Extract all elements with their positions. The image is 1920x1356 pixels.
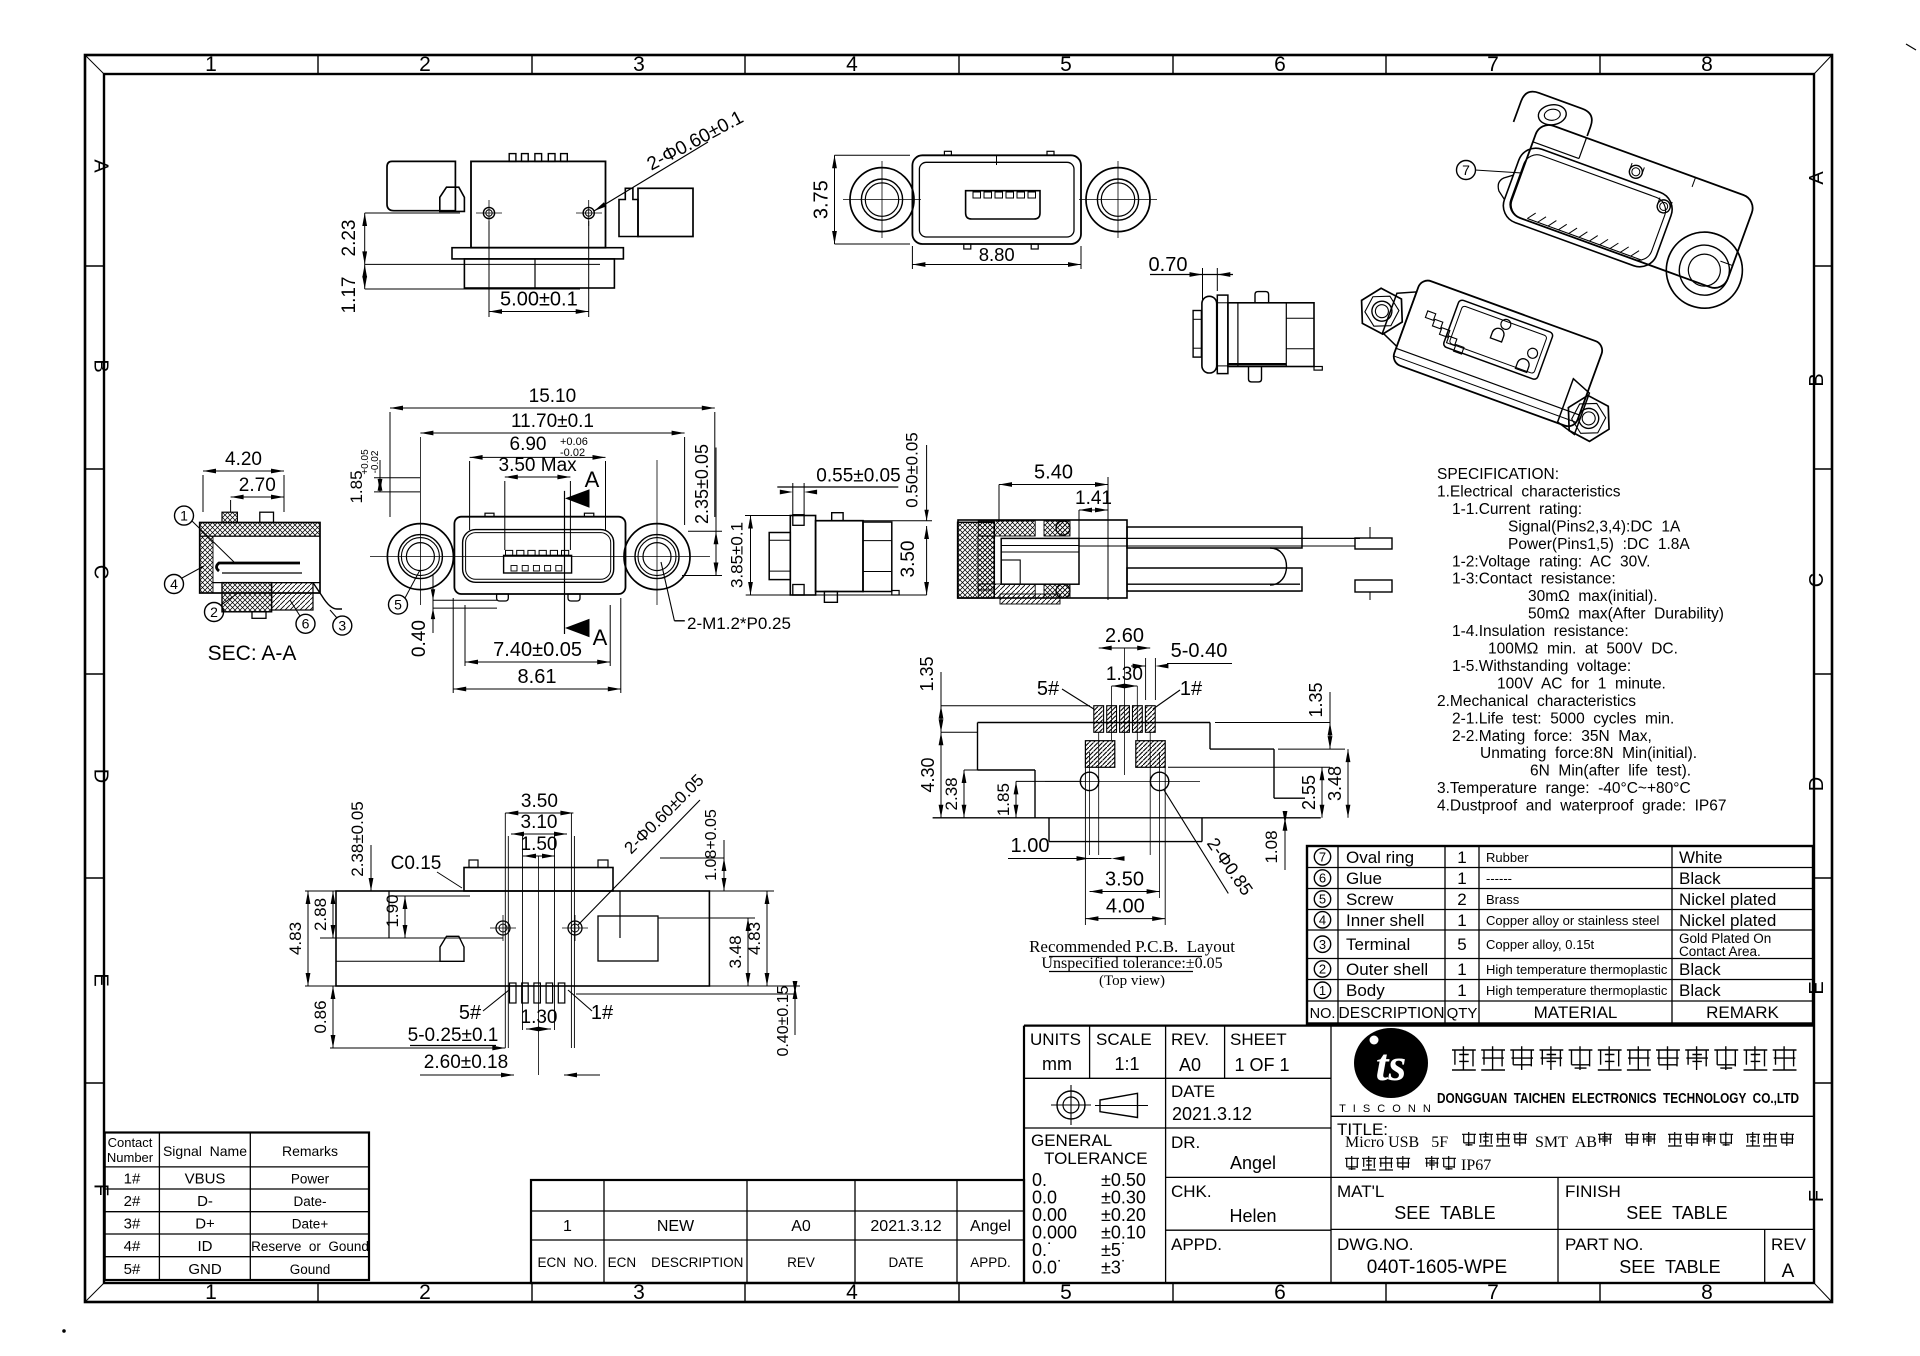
svg-text:ID: ID: [198, 1238, 213, 1255]
svg-text:±3˙: ±3˙: [1101, 1258, 1127, 1278]
svg-text:Oval ring: Oval ring: [1346, 848, 1414, 867]
svg-text:Signal(Pins2,3,4):DC 1A: Signal(Pins2,3,4):DC 1A: [1508, 518, 1681, 535]
svg-text:0.40±0.15: 0.40±0.15: [775, 985, 792, 1056]
svg-text:Angel: Angel: [1230, 1153, 1276, 1173]
svg-text:5#: 5#: [459, 1002, 482, 1024]
svg-text:Date-: Date-: [293, 1194, 326, 1209]
svg-text:Copper alloy or stainless stee: Copper alloy or stainless steel: [1486, 913, 1660, 928]
svg-text:2.70: 2.70: [239, 475, 276, 496]
svg-text:1.08+0.05: 1.08+0.05: [703, 809, 720, 881]
svg-text:1.30: 1.30: [521, 1007, 558, 1028]
svg-text:Unspecified tolerance:±0.05: Unspecified tolerance:±0.05: [1041, 955, 1222, 972]
svg-text:4.30: 4.30: [918, 757, 938, 792]
svg-text:2.Mechanical characteristics: 2.Mechanical characteristics: [1437, 693, 1636, 710]
svg-text:Date+: Date+: [292, 1216, 329, 1231]
svg-text:Helen: Helen: [1229, 1206, 1276, 1226]
svg-text:SEC: A-A: SEC: A-A: [208, 642, 297, 665]
svg-text:040T-1605-WPE: 040T-1605-WPE: [1367, 1257, 1507, 1278]
svg-text:F: F: [90, 1184, 112, 1196]
svg-text:SEE TABLE: SEE TABLE: [1626, 1203, 1727, 1223]
svg-text:A0: A0: [1179, 1055, 1201, 1075]
svg-text:DATE: DATE: [1171, 1082, 1215, 1101]
svg-text:1-5.Withstanding voltage:: 1-5.Withstanding voltage:: [1452, 658, 1631, 675]
svg-text:(Top view): (Top view): [1099, 973, 1165, 989]
svg-text:TOLERANCE: TOLERANCE: [1044, 1149, 1148, 1168]
svg-text:6: 6: [302, 616, 310, 632]
svg-text:5#: 5#: [1037, 678, 1060, 700]
svg-text:3.Temperature range: -40°C~+: 3.Temperature range: -40°C~+80°C: [1437, 780, 1691, 797]
svg-text:------: ------: [1486, 871, 1512, 886]
svg-text:6: 6: [1274, 1281, 1286, 1304]
svg-text:Glue: Glue: [1346, 869, 1382, 888]
svg-text:1:1: 1:1: [1114, 1054, 1139, 1074]
svg-text:Recommended P.C.B. Layout: Recommended P.C.B. Layout: [1029, 937, 1235, 956]
svg-text:0.86: 0.86: [311, 1000, 330, 1033]
svg-text:100V AC for 1 minute.: 100V AC for 1 minute.: [1497, 675, 1666, 692]
svg-text:30mΩ max(initial).: 30mΩ max(initial).: [1528, 588, 1658, 605]
svg-text:1-2:Voltage rating: AC 30V.: 1-2:Voltage rating: AC 30V.: [1452, 553, 1650, 570]
svg-text:1: 1: [1457, 848, 1466, 867]
svg-text:0.55±0.05: 0.55±0.05: [816, 465, 900, 486]
svg-text:1-4.Insulation resistance:: 1-4.Insulation resistance:: [1452, 623, 1629, 640]
svg-text:11.70±0.1: 11.70±0.1: [511, 411, 594, 432]
svg-text:8.80: 8.80: [979, 244, 1015, 265]
svg-text:2-2.Mating force: 35N Max,: 2-2.Mating force: 35N Max,: [1452, 728, 1652, 745]
svg-text:MATERIAL: MATERIAL: [1534, 1003, 1618, 1022]
svg-text:SCALE: SCALE: [1096, 1030, 1152, 1049]
svg-text:REV: REV: [787, 1255, 815, 1270]
svg-text:4: 4: [170, 576, 178, 592]
svg-text:5: 5: [394, 597, 402, 613]
svg-text:3: 3: [633, 53, 645, 76]
svg-text:1.35: 1.35: [917, 656, 937, 691]
svg-text:Inner shell: Inner shell: [1346, 911, 1424, 930]
svg-text:8: 8: [1701, 53, 1713, 76]
svg-text:2: 2: [1457, 890, 1466, 909]
svg-text:D: D: [90, 769, 112, 783]
svg-text:1: 1: [180, 508, 188, 524]
svg-text:3.50: 3.50: [1105, 869, 1144, 891]
svg-text:1.00: 1.00: [1011, 835, 1050, 857]
svg-text:6: 6: [1319, 871, 1326, 886]
svg-text:1-1.Current rating:: 1-1.Current rating:: [1452, 501, 1582, 518]
svg-text:-0.02: -0.02: [370, 450, 381, 473]
svg-text:2.23: 2.23: [339, 220, 360, 257]
svg-text:NEW: NEW: [657, 1218, 695, 1235]
svg-text:C: C: [90, 565, 112, 579]
svg-text:5: 5: [1060, 1281, 1072, 1304]
svg-text:2021.3.12: 2021.3.12: [1172, 1104, 1252, 1124]
svg-text:Number: Number: [107, 1150, 154, 1165]
svg-text:Contact: Contact: [108, 1135, 153, 1150]
svg-text:Outer shell: Outer shell: [1346, 960, 1428, 979]
svg-text:Black: Black: [1679, 960, 1721, 979]
svg-text:NO.: NO.: [1310, 1006, 1336, 1022]
svg-text:5: 5: [1457, 935, 1466, 954]
svg-text:Body: Body: [1346, 981, 1385, 1000]
svg-text:2.60: 2.60: [1105, 625, 1144, 647]
svg-text:3: 3: [633, 1281, 645, 1304]
svg-text:SPECIFICATION:: SPECIFICATION:: [1437, 466, 1559, 483]
svg-text:7: 7: [1487, 1281, 1499, 1304]
svg-text:A: A: [585, 467, 600, 492]
svg-text:Remarks: Remarks: [282, 1143, 338, 1159]
svg-text:D+: D+: [195, 1215, 215, 1232]
svg-text:E: E: [1806, 981, 1828, 994]
svg-text:1.08: 1.08: [1262, 830, 1281, 863]
svg-text:SEE TABLE: SEE TABLE: [1394, 1203, 1495, 1223]
svg-text:DESCRIPTION: DESCRIPTION: [1339, 1005, 1445, 1022]
svg-text:ECN DESCRIPTION: ECN DESCRIPTION: [608, 1255, 744, 1270]
svg-text:SHEET: SHEET: [1230, 1030, 1287, 1049]
svg-text:REMARK: REMARK: [1706, 1003, 1779, 1022]
svg-text:5-0.40: 5-0.40: [1171, 640, 1228, 662]
svg-text:DWG.NO.: DWG.NO.: [1337, 1235, 1414, 1254]
svg-text:2.38±0.05: 2.38±0.05: [348, 801, 367, 877]
svg-text:1.35: 1.35: [1306, 682, 1326, 717]
svg-text:Signal Name: Signal Name: [163, 1143, 247, 1159]
svg-text:6N Min(after life test).: 6N Min(after life test).: [1530, 763, 1691, 780]
svg-text:A: A: [593, 625, 608, 650]
svg-text:5.00±0.1: 5.00±0.1: [500, 289, 578, 311]
svg-text:A: A: [1806, 171, 1828, 185]
svg-text:4.Dustproof and waterproof: 4.Dustproof and waterproof grade: IP67: [1437, 798, 1727, 815]
svg-text:1.Electrical characteristics: 1.Electrical characteristics: [1437, 483, 1621, 500]
svg-text:Copper alloy, 0.15t: Copper alloy, 0.15t: [1486, 937, 1595, 952]
svg-text:2021.3.12: 2021.3.12: [870, 1218, 941, 1235]
svg-text:Screw: Screw: [1346, 890, 1394, 909]
svg-text:3.50: 3.50: [521, 791, 558, 812]
svg-text:2#: 2#: [124, 1193, 141, 1210]
svg-text:4: 4: [846, 53, 858, 76]
svg-text:3.50 Max: 3.50 Max: [499, 455, 578, 476]
svg-text:1#: 1#: [124, 1171, 141, 1188]
svg-text:T I S C O N N: T I S C O N N: [1339, 1103, 1433, 1115]
svg-text:1-3:Contact resistance:: 1-3:Contact resistance:: [1452, 571, 1616, 588]
svg-text:2-1.Life test: 5000 cycles: 2-1.Life test: 5000 cycles min.: [1452, 710, 1674, 727]
svg-text:5: 5: [1060, 53, 1072, 76]
svg-text:1.90: 1.90: [383, 894, 402, 927]
svg-text:FINISH: FINISH: [1565, 1182, 1621, 1201]
svg-text:0.70: 0.70: [1149, 254, 1188, 276]
svg-text:6: 6: [1274, 53, 1286, 76]
svg-text:DATE: DATE: [888, 1255, 923, 1270]
svg-text:5#: 5#: [124, 1261, 141, 1278]
svg-text:Power: Power: [291, 1172, 330, 1187]
svg-text:50mΩ max(After Durability): 50mΩ max(After Durability): [1528, 606, 1724, 623]
svg-text:3.75: 3.75: [811, 180, 833, 219]
svg-text:A: A: [90, 159, 112, 173]
svg-text:5: 5: [1319, 892, 1326, 907]
svg-text:APPD.: APPD.: [970, 1255, 1011, 1270]
svg-text:1: 1: [1457, 911, 1466, 930]
svg-text:1: 1: [563, 1218, 572, 1235]
svg-text:DR.: DR.: [1171, 1133, 1200, 1152]
svg-text:Angel: Angel: [970, 1218, 1011, 1235]
svg-text:3: 3: [1319, 937, 1326, 952]
svg-text:Gound: Gound: [290, 1262, 331, 1277]
svg-text:3.85±0.1: 3.85±0.1: [728, 522, 747, 588]
svg-text:1.17: 1.17: [339, 277, 360, 314]
svg-text:3.50: 3.50: [898, 541, 919, 578]
svg-text:ECN NO.: ECN NO.: [537, 1255, 597, 1270]
svg-text:REV: REV: [1771, 1235, 1807, 1254]
svg-text:1: 1: [1457, 869, 1466, 888]
svg-text:1.41: 1.41: [1075, 488, 1112, 509]
svg-text:0.0˙: 0.0˙: [1032, 1258, 1063, 1278]
svg-text:2: 2: [210, 604, 218, 620]
svg-text:1: 1: [1457, 981, 1466, 1000]
svg-text:PART NO.: PART NO.: [1565, 1235, 1643, 1254]
svg-text:0.40: 0.40: [409, 620, 430, 657]
svg-text:15.10: 15.10: [529, 386, 577, 407]
svg-text:White: White: [1679, 848, 1722, 867]
svg-text:1: 1: [1457, 960, 1466, 979]
svg-text:Contact Area.: Contact Area.: [1679, 944, 1761, 959]
svg-text:2.38: 2.38: [942, 777, 961, 810]
svg-text:Terminal: Terminal: [1346, 935, 1410, 954]
svg-text:1.85: 1.85: [994, 783, 1013, 816]
svg-text:2: 2: [419, 53, 431, 76]
svg-text:2.55: 2.55: [1299, 775, 1319, 810]
svg-text:VBUS: VBUS: [185, 1171, 226, 1188]
svg-text:1.50: 1.50: [521, 834, 558, 855]
svg-text:3.48: 3.48: [1325, 766, 1345, 801]
svg-text:4: 4: [1319, 912, 1326, 927]
svg-text:Black: Black: [1679, 869, 1721, 888]
svg-text:F: F: [1806, 1190, 1828, 1202]
svg-text:1#: 1#: [591, 1002, 614, 1024]
svg-text:C0.15: C0.15: [391, 853, 442, 874]
svg-text:1: 1: [205, 1281, 217, 1304]
svg-text:B: B: [1806, 373, 1828, 386]
svg-text:2.35±0.05: 2.35±0.05: [692, 444, 712, 524]
svg-text:3: 3: [338, 618, 346, 634]
svg-text:0.50±0.05: 0.50±0.05: [903, 432, 922, 508]
svg-text:D-: D-: [197, 1193, 213, 1210]
svg-text:100MΩ min. at 500V DC.: 100MΩ min. at 500V DC.: [1488, 641, 1678, 658]
svg-text:SEE TABLE: SEE TABLE: [1619, 1257, 1720, 1277]
svg-text:5.40: 5.40: [1034, 462, 1073, 484]
svg-text:4.20: 4.20: [225, 449, 262, 470]
svg-text:5-0.25±0.1: 5-0.25±0.1: [408, 1025, 499, 1046]
svg-text:REV.: REV.: [1171, 1030, 1209, 1049]
svg-text:QTY: QTY: [1447, 1005, 1478, 1022]
svg-text:Black: Black: [1679, 981, 1721, 1000]
svg-text:Reserve or Gound: Reserve or Gound: [251, 1239, 369, 1254]
svg-text:DONGGUAN TAICHEN ELECTRONICS: DONGGUAN TAICHEN ELECTRONICS TECHNOLOGY …: [1437, 1091, 1799, 1107]
svg-text:Unmating force:8N Min(initia: Unmating force:8N Min(initial).: [1480, 745, 1697, 762]
svg-text:2-M1.2*P0.25: 2-M1.2*P0.25: [687, 614, 791, 633]
svg-text:Nickel plated: Nickel plated: [1679, 911, 1776, 930]
svg-text:Rubber: Rubber: [1486, 850, 1529, 865]
svg-text:E: E: [90, 973, 112, 986]
svg-text:MAT'L: MAT'L: [1337, 1182, 1384, 1201]
svg-text:3#: 3#: [124, 1215, 141, 1232]
svg-text:2.60±0.18: 2.60±0.18: [424, 1052, 508, 1073]
svg-text:7: 7: [1319, 849, 1326, 864]
svg-text:3.48: 3.48: [726, 935, 745, 968]
svg-text:mm: mm: [1042, 1054, 1072, 1074]
svg-text:Micro USB 5F: Micro USB 5F: [1345, 1134, 1448, 1151]
svg-text:4#: 4#: [124, 1238, 141, 1255]
svg-text:3.10: 3.10: [521, 812, 558, 833]
svg-text:APPD.: APPD.: [1171, 1235, 1222, 1254]
svg-text:C: C: [1806, 573, 1828, 587]
svg-text:1: 1: [205, 53, 217, 76]
svg-text:1 OF 1: 1 OF 1: [1234, 1055, 1289, 1075]
svg-text:4: 4: [846, 1281, 858, 1304]
svg-text:6.90: 6.90: [510, 434, 547, 455]
svg-text:7: 7: [1462, 162, 1470, 178]
svg-text:Nickel plated: Nickel plated: [1679, 890, 1776, 909]
svg-text:ts: ts: [1376, 1039, 1407, 1090]
svg-text:8.61: 8.61: [518, 666, 557, 688]
svg-text:2: 2: [419, 1281, 431, 1304]
svg-text:4.00: 4.00: [1106, 896, 1145, 918]
svg-text:D: D: [1806, 777, 1828, 791]
svg-text:8: 8: [1701, 1281, 1713, 1304]
svg-text:GENERAL: GENERAL: [1031, 1131, 1112, 1150]
svg-text:High temperature thermoplastic: High temperature thermoplastic: [1486, 962, 1668, 977]
svg-text:7: 7: [1487, 53, 1499, 76]
svg-text:GND: GND: [188, 1261, 222, 1278]
svg-text:High temperature thermoplastic: High temperature thermoplastic: [1486, 983, 1668, 998]
svg-text:7.40±0.05: 7.40±0.05: [493, 639, 582, 661]
svg-text:IP67: IP67: [1461, 1157, 1491, 1174]
svg-text:B: B: [90, 359, 112, 372]
svg-text:Power(Pins1,5) :DC 1.8A: Power(Pins1,5) :DC 1.8A: [1508, 536, 1690, 553]
svg-text:CHK.: CHK.: [1171, 1182, 1212, 1201]
svg-text:A0: A0: [791, 1218, 811, 1235]
svg-text:4.83: 4.83: [286, 922, 305, 955]
svg-text:Brass: Brass: [1486, 892, 1520, 907]
svg-text:SMT AB: SMT AB: [1535, 1134, 1597, 1151]
svg-text:UNITS: UNITS: [1030, 1030, 1081, 1049]
svg-text:2: 2: [1319, 962, 1326, 977]
svg-text:1#: 1#: [1180, 678, 1203, 700]
svg-text:A: A: [1782, 1261, 1795, 1282]
svg-text:1: 1: [1319, 983, 1326, 998]
svg-text:2.88: 2.88: [311, 898, 330, 931]
svg-text:4.83: 4.83: [745, 922, 764, 955]
